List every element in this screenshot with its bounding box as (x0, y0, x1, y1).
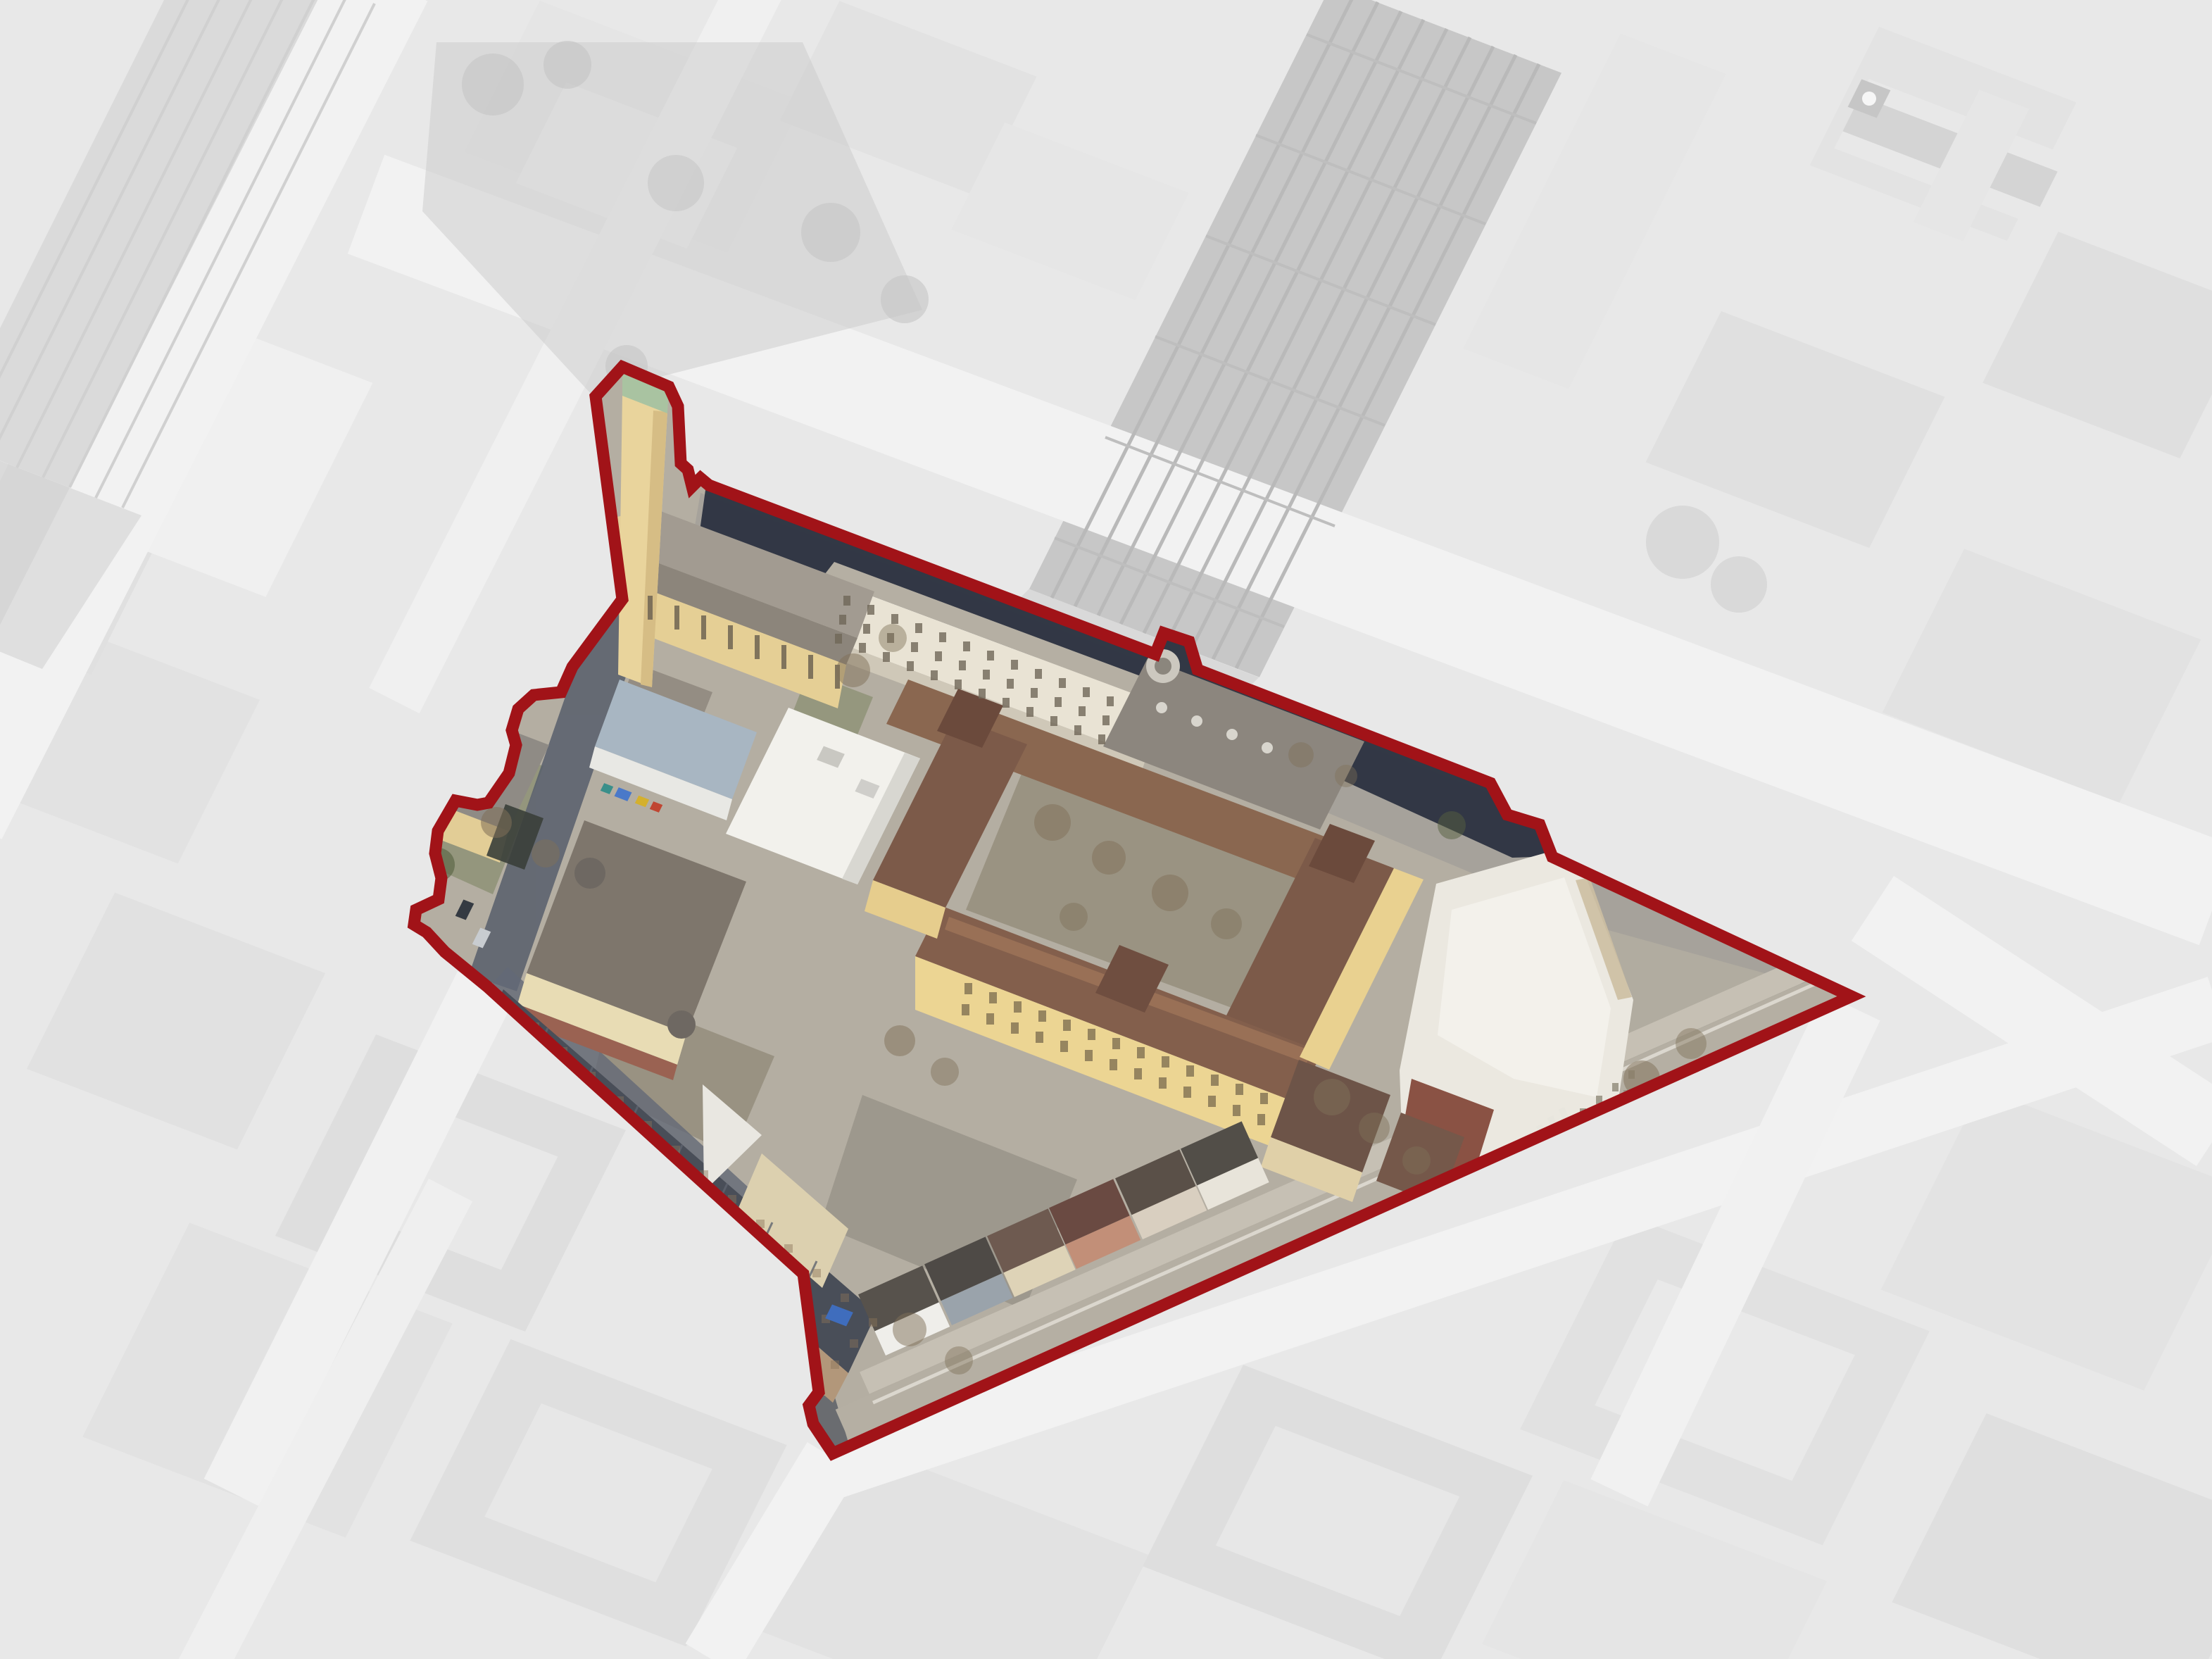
window-dot-0-0-10 (1083, 687, 1090, 697)
window-dot-1-1-0 (962, 1004, 969, 1015)
window-dot-0-1-6 (983, 670, 990, 680)
window-dot-2-3-7 (1612, 1083, 1619, 1091)
window-dot-4-0-4 (755, 635, 760, 659)
window-dot-1-1-4 (1060, 1041, 1068, 1052)
window-dot-0-2-6 (979, 689, 986, 699)
site-tree-or-turret-4 (1156, 702, 1167, 713)
window-dot-0-2-11 (1098, 734, 1105, 744)
site-tree-or-turret-2 (574, 858, 605, 889)
site-tree-or-turret-11 (532, 839, 560, 868)
window-dot-0-0-2 (891, 614, 898, 624)
window-dot-0-1-1 (863, 624, 870, 634)
window-dot-1-1-8 (1159, 1077, 1167, 1089)
site-tree-or-turret-24 (893, 1313, 926, 1346)
window-dot-0-1-9 (1055, 697, 1062, 707)
site-tree-or-turret-25 (945, 1346, 973, 1375)
window-dot-1-1-12 (1257, 1114, 1265, 1125)
window-dot-0-0-1 (867, 605, 874, 615)
window-dot-1-0-7 (1137, 1047, 1145, 1058)
window-dot-0-1-5 (959, 661, 966, 670)
window-dot-1-0-9 (1186, 1065, 1194, 1077)
window-dot-1-0-2 (1014, 1001, 1022, 1013)
window-dot-4-0-6 (808, 655, 813, 679)
site-tree-or-turret-5 (1191, 715, 1202, 727)
window-dot-0-0-3 (915, 623, 922, 633)
window-dot-1-1-2 (1011, 1022, 1019, 1034)
window-dot-0-2-8 (1026, 707, 1033, 717)
window-dot-1-1-6 (1110, 1059, 1117, 1070)
window-dot-1-1-9 (1183, 1087, 1191, 1098)
window-dot-0-0-11 (1107, 696, 1114, 706)
window-dot-0-0-7 (1011, 660, 1018, 670)
aerial-photo-map (0, 0, 2212, 1659)
window-dot-1-1-5 (1085, 1050, 1093, 1061)
site-tree-or-turret-15 (1092, 841, 1126, 875)
window-dot-1-0-5 (1088, 1029, 1095, 1040)
site-tree-or-turret-14 (1034, 804, 1071, 841)
window-dot-0-0-5 (963, 641, 970, 651)
window-dot-1-1-1 (986, 1013, 994, 1025)
site-tree-or-turret-19 (884, 1025, 915, 1056)
site-tree-or-turret-7 (1262, 742, 1273, 753)
site-tree-or-turret-18 (1060, 903, 1088, 931)
site-tree-or-turret-21 (1314, 1079, 1350, 1115)
window-dot-1-0-1 (989, 992, 997, 1003)
site-tree-or-turret-3 (667, 1010, 696, 1039)
window-dot-0-1-4 (935, 651, 942, 661)
window-dot-0-2-7 (1003, 698, 1010, 708)
window-dot-0-0-0 (843, 596, 850, 606)
window-dot-1-0-4 (1063, 1020, 1071, 1031)
window-dot-3-1-12 (850, 1339, 858, 1348)
window-dot-0-1-11 (1102, 715, 1110, 725)
site-tree-or-turret-31 (1438, 811, 1466, 839)
window-dot-4-0-2 (701, 615, 706, 639)
site-tree-or-turret-20 (931, 1058, 959, 1086)
site-tree-or-turret-27 (1676, 1028, 1707, 1059)
window-dot-0-2-0 (835, 634, 842, 644)
window-dot-1-1-11 (1233, 1105, 1240, 1116)
site-tree-or-turret-22 (1359, 1113, 1390, 1144)
site-tree-or-turret-17 (1211, 908, 1242, 939)
window-dot-0-1-7 (1007, 679, 1014, 689)
site-tree-or-turret-6 (1226, 729, 1238, 740)
window-dot-1-1-3 (1036, 1032, 1043, 1043)
window-dot-1-0-3 (1038, 1010, 1046, 1022)
window-dot-0-2-3 (907, 661, 914, 671)
window-dot-0-0-4 (939, 632, 946, 642)
window-dot-3-0-12 (831, 1360, 839, 1369)
window-dot-0-1-0 (839, 615, 846, 625)
window-dot-1-0-11 (1236, 1084, 1243, 1095)
site-tree-or-turret-9 (481, 807, 512, 838)
window-dot-1-0-12 (1260, 1093, 1268, 1104)
site-tree-or-turret-23 (1402, 1146, 1431, 1175)
window-dot-0-0-6 (987, 651, 994, 661)
window-dot-4-0-1 (674, 606, 679, 630)
site-tree-or-turret-29 (1288, 742, 1314, 768)
window-dot-4-0-3 (728, 625, 733, 649)
site-tree-or-turret-13 (879, 624, 907, 652)
window-dot-1-1-7 (1134, 1068, 1142, 1079)
window-dot-4-0-0 (648, 596, 653, 620)
window-dot-0-2-5 (955, 680, 962, 689)
window-dot-0-2-10 (1074, 725, 1081, 735)
window-dot-0-1-8 (1031, 688, 1038, 698)
window-dot-1-1-10 (1208, 1096, 1216, 1107)
window-dot-1-0-10 (1211, 1075, 1219, 1086)
window-dot-1-0-8 (1162, 1056, 1169, 1068)
window-dot-1-0-6 (1112, 1038, 1120, 1049)
site-tree-or-turret-16 (1152, 875, 1188, 911)
aerial-map-stage (0, 0, 2212, 1659)
window-dot-4-0-5 (781, 645, 786, 669)
window-dot-0-1-3 (911, 642, 918, 652)
window-dot-0-0-8 (1035, 669, 1042, 679)
window-dot-0-1-10 (1079, 706, 1086, 716)
window-dot-0-2-1 (859, 643, 866, 653)
window-dot-0-2-2 (883, 652, 890, 662)
window-dot-0-2-9 (1050, 716, 1057, 726)
site-tree-or-turret-30 (1335, 765, 1357, 787)
window-dot-3-2-11 (841, 1294, 849, 1302)
window-dot-0-0-9 (1059, 678, 1066, 688)
window-dot-0-2-4 (931, 670, 938, 680)
site-tree-or-turret-12 (836, 653, 870, 687)
window-dot-3-2-10 (812, 1269, 821, 1277)
window-dot-1-0-0 (964, 983, 972, 994)
window-dot-3-2-12 (869, 1318, 877, 1327)
